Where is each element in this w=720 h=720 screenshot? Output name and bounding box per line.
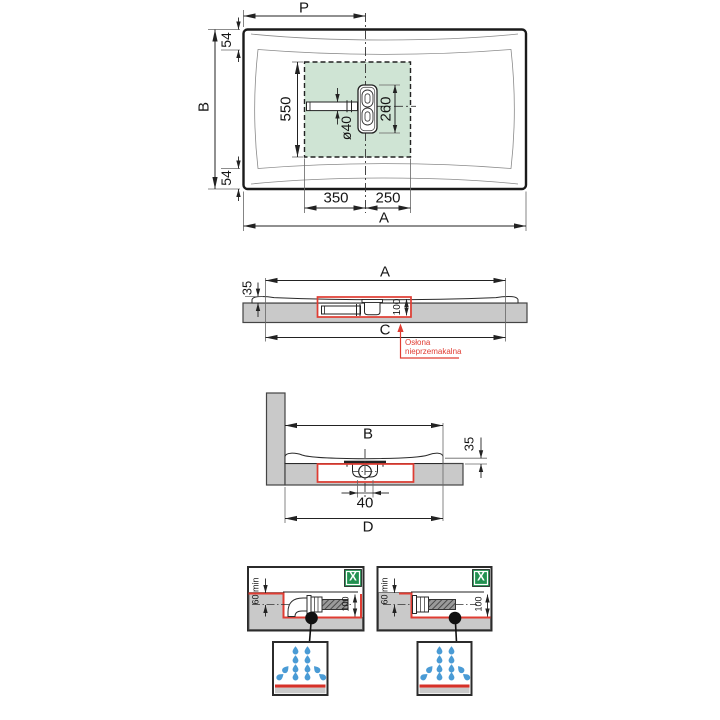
- dim-label-100-right: 100: [475, 596, 484, 611]
- dim-label-c: C: [380, 323, 391, 338]
- drawing-linework: [0, 0, 720, 720]
- detail-marker-x-left: X: [349, 572, 357, 584]
- detail-right: [378, 567, 492, 695]
- shower-tray-technical-drawing: P B 54 54 550 ø40 260 350 250 A A 35 100…: [0, 0, 720, 720]
- dim-label-b: B: [197, 102, 212, 112]
- top-view: [208, 10, 526, 231]
- section-view: [267, 393, 488, 523]
- spray-detail-box: [418, 642, 472, 695]
- dim-label-p: P: [299, 1, 309, 16]
- dim-label-40: 40: [357, 496, 374, 511]
- dim-label-260: 260: [379, 96, 394, 121]
- dim-label-60min-right: 60 min: [381, 577, 390, 604]
- dim-label-35-section: 35: [463, 437, 476, 451]
- dim-label-a: A: [379, 211, 389, 226]
- dim-label-54-top: 54: [219, 32, 233, 48]
- dim-label-550: 550: [279, 96, 294, 121]
- waterproof-note: Osłona nieprzemakalna: [405, 338, 461, 356]
- dim-label-100-side: 100: [393, 299, 403, 316]
- wall: [267, 393, 286, 485]
- dim-label-35-side: 35: [241, 281, 254, 295]
- callout-dot: [305, 612, 318, 625]
- dim-label-diameter-40: ø40: [339, 116, 353, 140]
- dim-label-a-side: A: [380, 265, 390, 280]
- detail-marker-x-right: X: [477, 572, 485, 584]
- dim-label-54-bottom: 54: [219, 170, 233, 186]
- dim-label-350: 350: [323, 191, 348, 206]
- waste-pipe: [307, 100, 358, 112]
- spray-detail-box: [273, 642, 328, 695]
- dim-label-b-section: B: [363, 427, 373, 442]
- side-view: [243, 278, 527, 358]
- detail-views: [248, 567, 492, 695]
- waterproof-note-line1: Osłona: [405, 338, 461, 347]
- detail-left: [248, 567, 364, 695]
- dim-label-d: D: [363, 520, 374, 535]
- waterproof-note-line2: nieprzemakalna: [405, 347, 461, 356]
- dim-label-100-left: 100: [342, 596, 351, 611]
- drain-cover: [358, 85, 377, 133]
- callout-dot: [449, 612, 462, 625]
- dim-label-250: 250: [375, 191, 400, 206]
- dim-label-60min-left: 60 min: [252, 577, 261, 604]
